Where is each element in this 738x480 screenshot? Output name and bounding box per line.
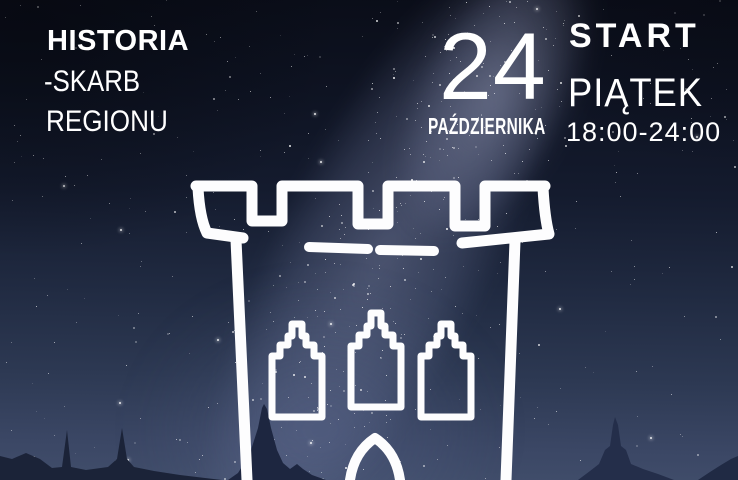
window-left: [272, 324, 322, 417]
battlement-hem-1: [309, 247, 368, 249]
battlement-left-flare: [198, 188, 243, 238]
gate-arch: [350, 438, 400, 480]
battlement-right-flare: [462, 188, 549, 243]
poster: HISTORIA -SKARB REGIONU 24 PAŹDZIERNIKA …: [0, 0, 738, 480]
event-title-line-3: REGIONU: [46, 107, 168, 137]
tower-left-wall: [236, 240, 247, 480]
event-hours: 18:00-24:00: [566, 119, 721, 146]
event-title-line-2: -SKARB: [44, 67, 140, 97]
battlement-hem-2: [380, 250, 434, 251]
window-middle: [351, 313, 401, 407]
window-right: [421, 324, 471, 417]
event-title-line-1: HISTORIA: [47, 27, 189, 56]
start-label: START: [569, 19, 700, 53]
event-weekday: PIĄTEK: [568, 73, 703, 113]
event-month: PAŹDZIERNIKA: [428, 115, 546, 138]
battlement-crenellation: [196, 186, 545, 226]
event-day: 24: [439, 20, 547, 115]
tower-right-wall: [506, 241, 515, 480]
